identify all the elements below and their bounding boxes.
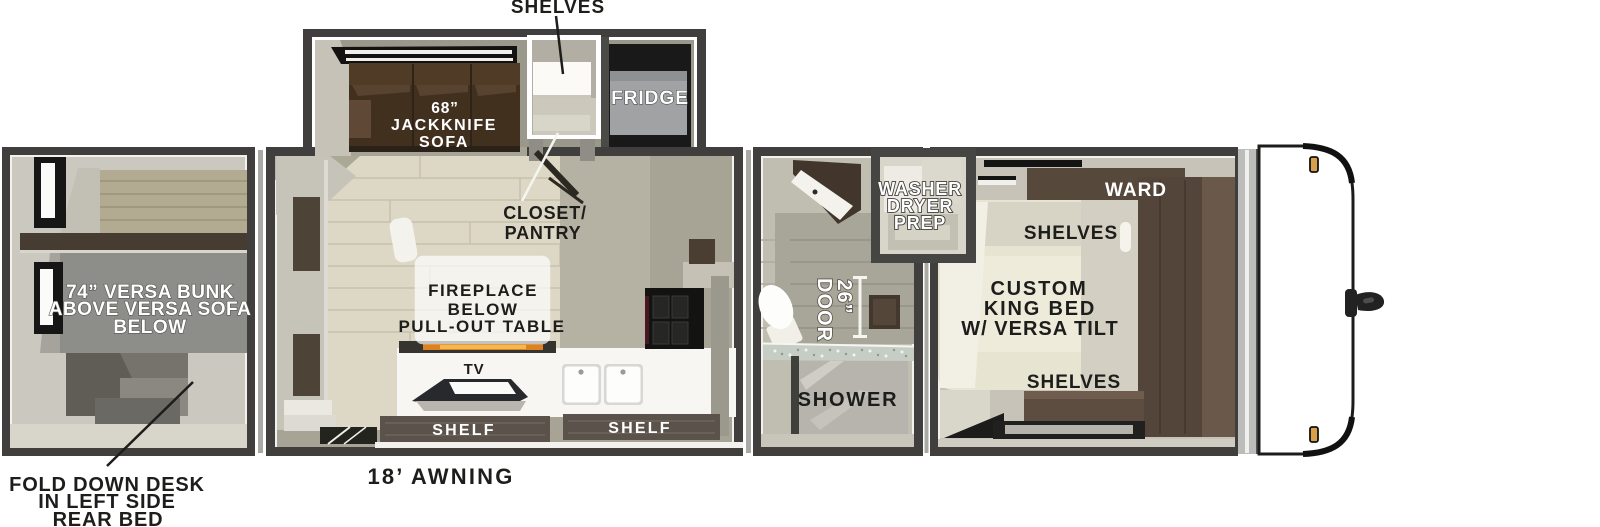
svg-text:BELOW: BELOW bbox=[113, 317, 186, 338]
svg-text:PULL-OUT TABLE: PULL-OUT TABLE bbox=[398, 317, 565, 336]
svg-text:68”: 68” bbox=[431, 100, 458, 117]
svg-text:SHOWER: SHOWER bbox=[798, 389, 899, 411]
svg-text:PREP: PREP bbox=[894, 213, 946, 233]
svg-text:26”: 26” bbox=[833, 279, 855, 314]
svg-text:CLOSET/: CLOSET/ bbox=[503, 203, 587, 223]
svg-text:18’ AWNING: 18’ AWNING bbox=[367, 464, 514, 489]
svg-text:SHELVES: SHELVES bbox=[511, 0, 605, 18]
svg-text:FRIDGE: FRIDGE bbox=[611, 88, 689, 109]
svg-text:DOOR: DOOR bbox=[813, 278, 835, 342]
svg-text:SOFA: SOFA bbox=[419, 134, 469, 151]
svg-text:PANTRY: PANTRY bbox=[505, 223, 582, 243]
svg-text:SHELVES: SHELVES bbox=[1024, 223, 1118, 244]
svg-text:FIREPLACE: FIREPLACE bbox=[428, 281, 538, 300]
svg-text:W/ VERSA TILT: W/ VERSA TILT bbox=[961, 318, 1118, 340]
svg-text:SHELVES: SHELVES bbox=[1027, 372, 1121, 393]
svg-text:CUSTOM: CUSTOM bbox=[990, 278, 1087, 300]
svg-text:TV: TV bbox=[464, 361, 485, 378]
svg-text:JACKKNIFE: JACKKNIFE bbox=[391, 117, 497, 134]
svg-text:REAR BED: REAR BED bbox=[53, 509, 164, 527]
svg-text:KING BED: KING BED bbox=[984, 298, 1096, 320]
svg-text:SHELF: SHELF bbox=[432, 422, 495, 439]
svg-text:SHELF: SHELF bbox=[608, 420, 671, 437]
svg-text:WARD: WARD bbox=[1105, 180, 1167, 201]
